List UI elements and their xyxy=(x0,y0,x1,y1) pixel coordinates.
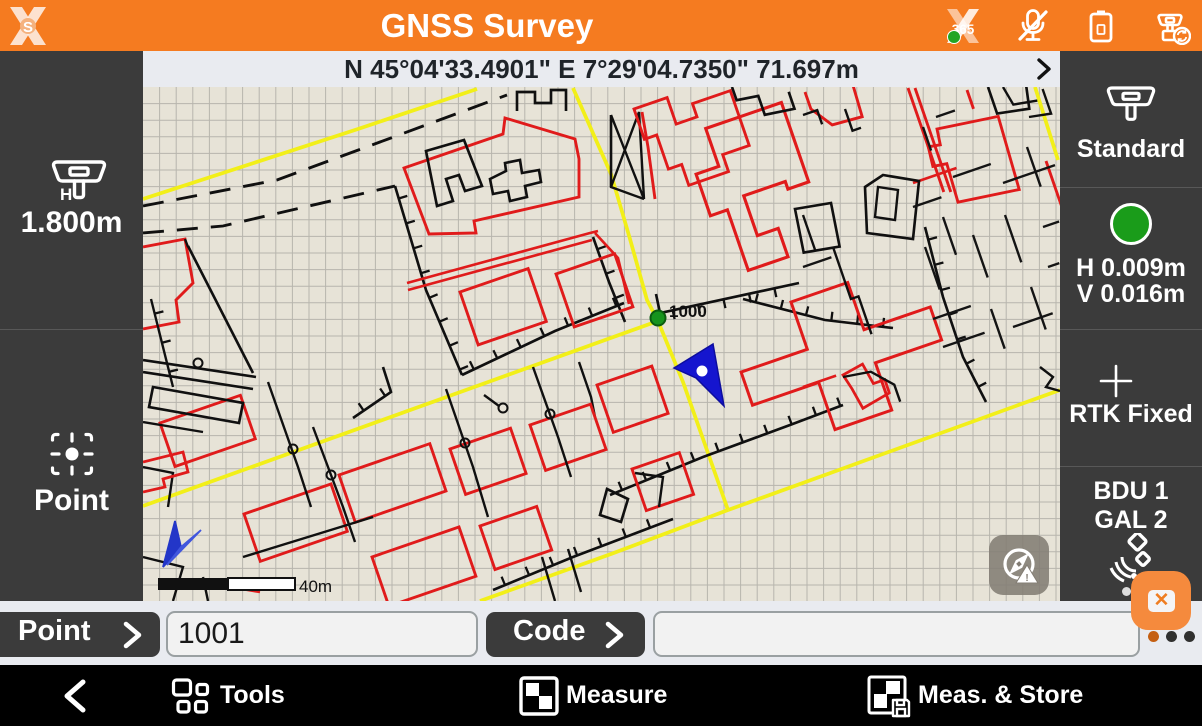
svg-text:H: H xyxy=(60,185,72,204)
svg-text:!: ! xyxy=(1025,573,1028,584)
svg-text:40m: 40m xyxy=(299,577,332,596)
svg-text:1000: 1000 xyxy=(669,302,707,321)
